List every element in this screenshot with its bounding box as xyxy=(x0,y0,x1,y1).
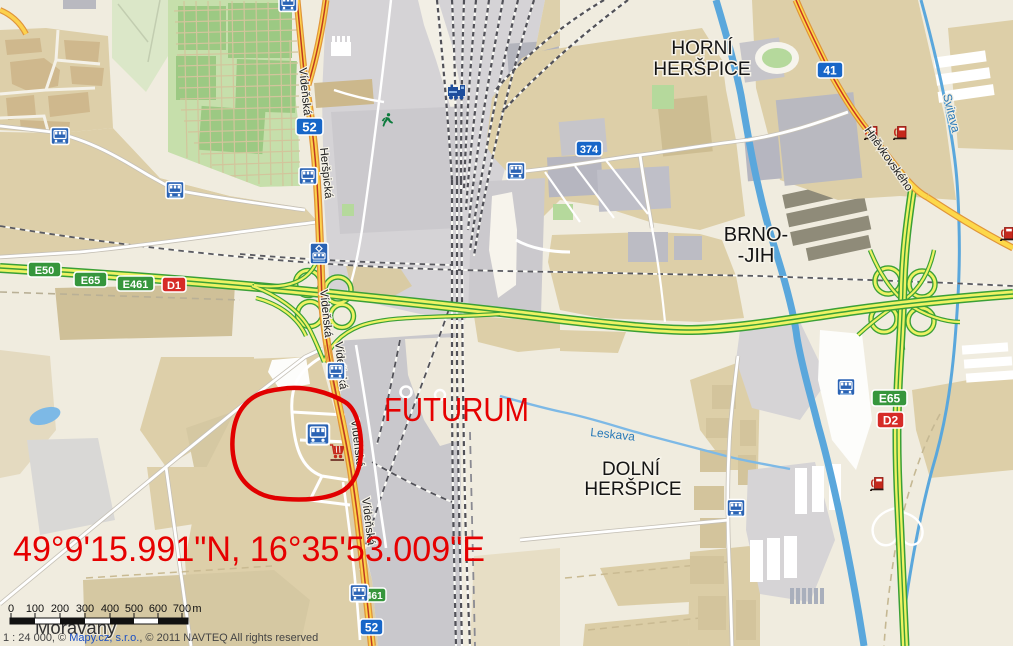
svg-text:52: 52 xyxy=(365,621,379,635)
svg-text:E65: E65 xyxy=(81,275,101,287)
svg-text:D1: D1 xyxy=(167,280,181,292)
svg-text:HORNÍ: HORNÍ xyxy=(671,38,733,59)
svg-text:DOLNÍ: DOLNÍ xyxy=(602,459,661,480)
svg-text:E461: E461 xyxy=(123,279,149,291)
svg-text:49°9'15.991"N, 16°35'53.009"E: 49°9'15.991"N, 16°35'53.009"E xyxy=(13,530,485,569)
svg-text:374: 374 xyxy=(580,144,599,156)
svg-text:52: 52 xyxy=(302,120,316,135)
svg-text:FUTURUM: FUTURUM xyxy=(384,391,529,428)
svg-text:E65: E65 xyxy=(879,392,901,406)
svg-text:HERŠPICE: HERŠPICE xyxy=(584,478,681,500)
svg-text:41: 41 xyxy=(823,64,837,78)
svg-text:m: m xyxy=(192,603,201,615)
svg-text:HERŠPICE: HERŠPICE xyxy=(653,58,750,80)
svg-text:E50: E50 xyxy=(35,265,55,277)
svg-text:D2: D2 xyxy=(883,414,899,428)
svg-text:1 : 24 000, © Mapy.cz, s.r.o.,: 1 : 24 000, © Mapy.cz, s.r.o., © 2011 NA… xyxy=(3,632,318,644)
svg-text:BRNO-: BRNO- xyxy=(724,224,788,246)
svg-text:-JIH: -JIH xyxy=(738,245,775,267)
